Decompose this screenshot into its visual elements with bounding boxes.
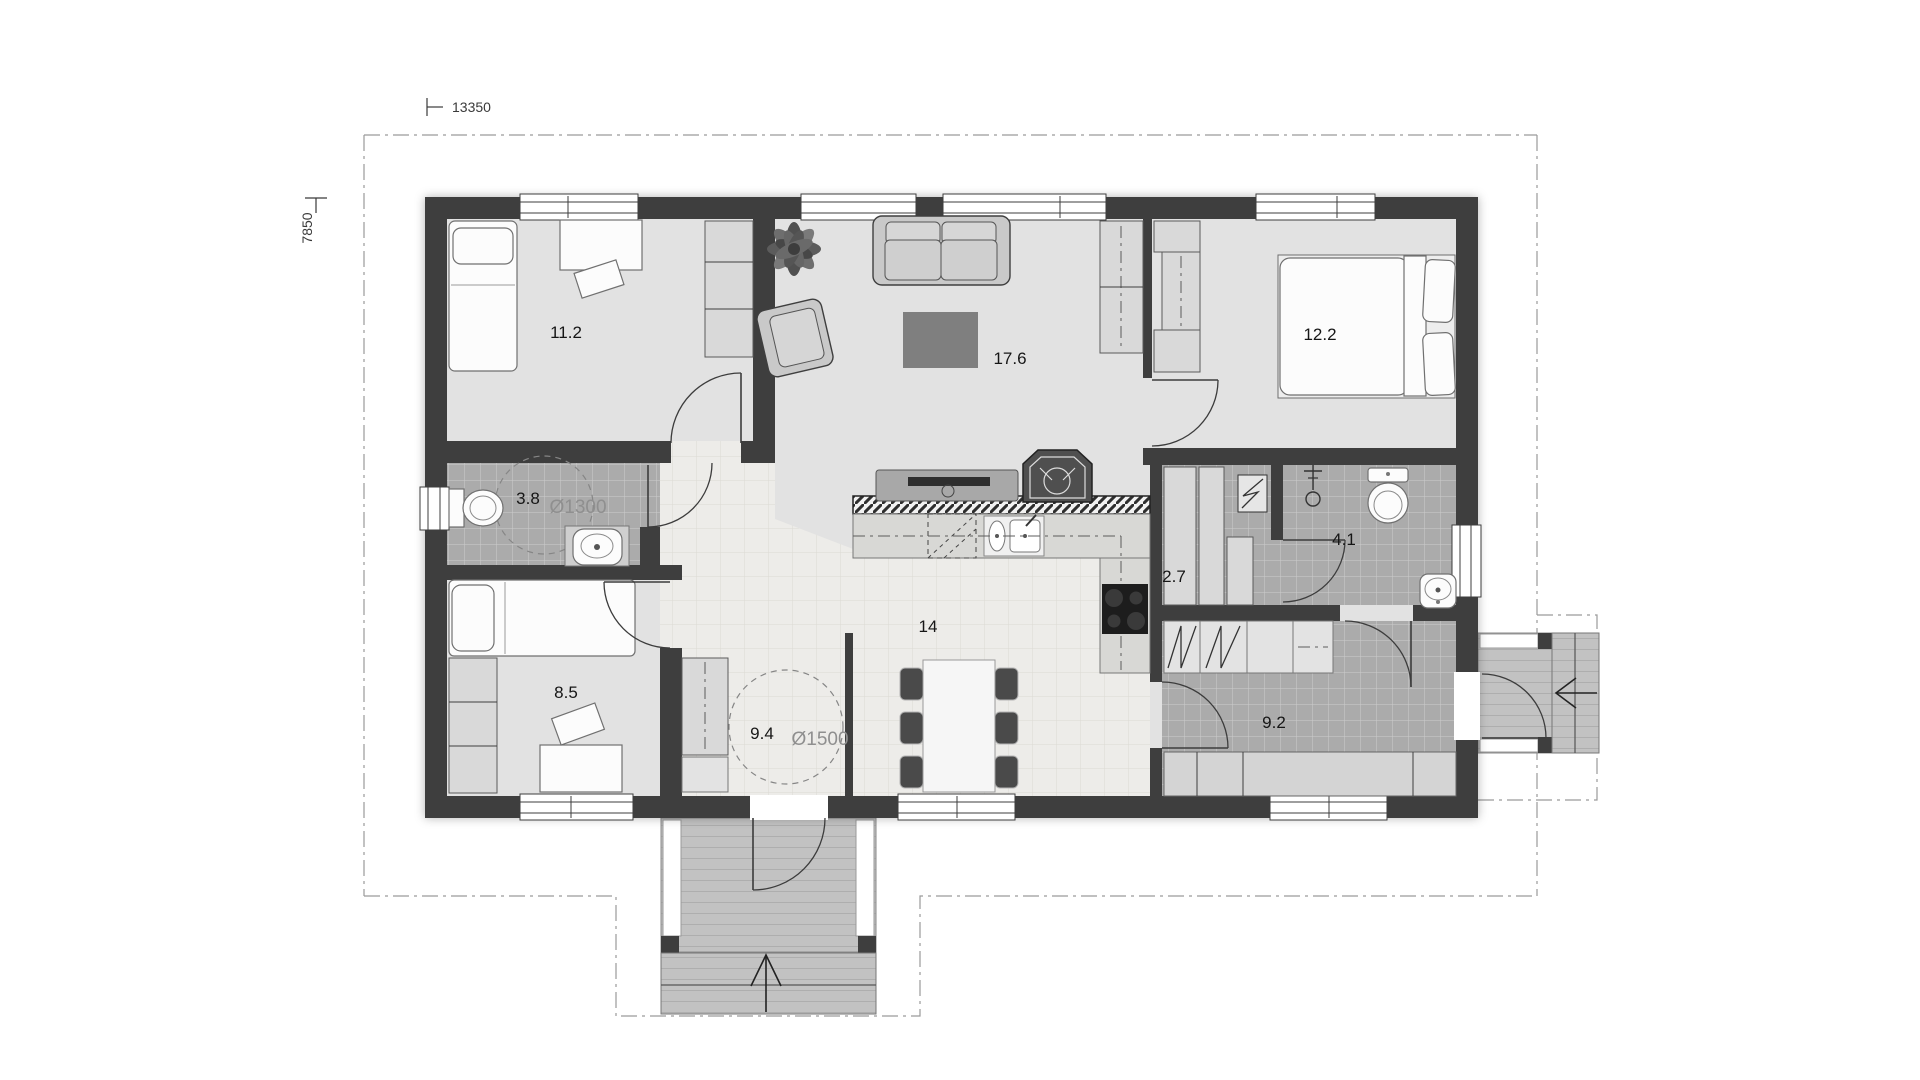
- label-bathroom1: 3.8: [516, 489, 540, 508]
- pillow: [452, 585, 494, 651]
- toilet: [1368, 468, 1408, 523]
- label-bathroom1-clearance: Ø1300: [549, 497, 606, 518]
- sofa: [873, 216, 1010, 285]
- dimension-width: 13350: [427, 98, 491, 116]
- dining-table: [923, 660, 995, 792]
- floor-plan-canvas: 13350 7850: [0, 0, 1920, 1080]
- label-bedroom1: 11.2: [550, 323, 582, 342]
- desk: [560, 220, 642, 270]
- side-porch-post-top: [1538, 633, 1552, 649]
- wardrobe: [449, 658, 497, 793]
- toilet: [449, 489, 503, 527]
- chair: [995, 756, 1018, 788]
- utility-unit: [1247, 621, 1293, 673]
- window-utility: [1270, 794, 1387, 820]
- sink: [565, 526, 629, 566]
- floor-plan-page: 13350 7850: [0, 0, 1920, 1080]
- fireplace: [1023, 450, 1092, 502]
- dimension-height-label: 7850: [299, 212, 315, 243]
- chair: [900, 668, 923, 700]
- utility-counter: [1164, 752, 1456, 796]
- dining-table-set: [900, 660, 1018, 792]
- window-dining: [898, 794, 1015, 820]
- building: 11.2 17.6 12.2 3.8 Ø1300 2.7 4.1 8.5 9.4…: [420, 194, 1546, 890]
- wardrobe: [705, 221, 753, 357]
- label-living: 17.6: [993, 349, 1026, 368]
- electrical-panel: [1238, 475, 1267, 512]
- label-bedroom2: 12.2: [1303, 325, 1336, 344]
- label-kitchen: 14: [919, 617, 938, 636]
- label-utility: 9.2: [1262, 713, 1286, 732]
- dryer: [1200, 621, 1247, 673]
- side-porch: [1478, 633, 1599, 753]
- hall-cabinet: [682, 658, 728, 792]
- porch-post-left: [661, 936, 679, 953]
- dimension-width-label: 13350: [452, 99, 491, 115]
- porch-rail-right: [856, 820, 874, 936]
- plant: [767, 222, 821, 276]
- label-bathroom2: 4.1: [1332, 530, 1356, 549]
- armchair: [755, 297, 835, 378]
- side-porch-post-bottom: [1538, 737, 1552, 753]
- tv-stand: [876, 470, 1018, 501]
- label-closet: 2.7: [1162, 567, 1186, 586]
- window-bedroom1: [520, 194, 638, 220]
- rug: [903, 312, 978, 368]
- wardrobe-living-side: [1100, 221, 1143, 353]
- sink: [1420, 574, 1456, 608]
- chair: [995, 712, 1018, 744]
- desk: [540, 745, 622, 792]
- pillow: [453, 228, 513, 264]
- window-bedroom3: [520, 794, 633, 820]
- chair: [900, 756, 923, 788]
- cooktop: [1102, 584, 1148, 634]
- entrance-porch: [661, 818, 876, 1014]
- porch-rail-left: [663, 820, 681, 936]
- chair: [900, 712, 923, 744]
- window-bedroom2: [1256, 194, 1375, 220]
- label-hall: 9.4: [750, 724, 774, 743]
- label-bedroom3: 8.5: [554, 683, 578, 702]
- dimension-height: 7850: [299, 198, 327, 244]
- washer: [1164, 621, 1200, 673]
- side-door-opening: [1454, 672, 1480, 740]
- porch-post-right: [858, 936, 876, 953]
- window-bathroom1: [420, 487, 449, 530]
- porch-steps: [661, 953, 876, 1014]
- label-hall-clearance: Ø1500: [791, 729, 848, 750]
- entrance-door-opening: [750, 795, 828, 820]
- utility-cabinet: [1293, 621, 1333, 673]
- chair: [995, 668, 1018, 700]
